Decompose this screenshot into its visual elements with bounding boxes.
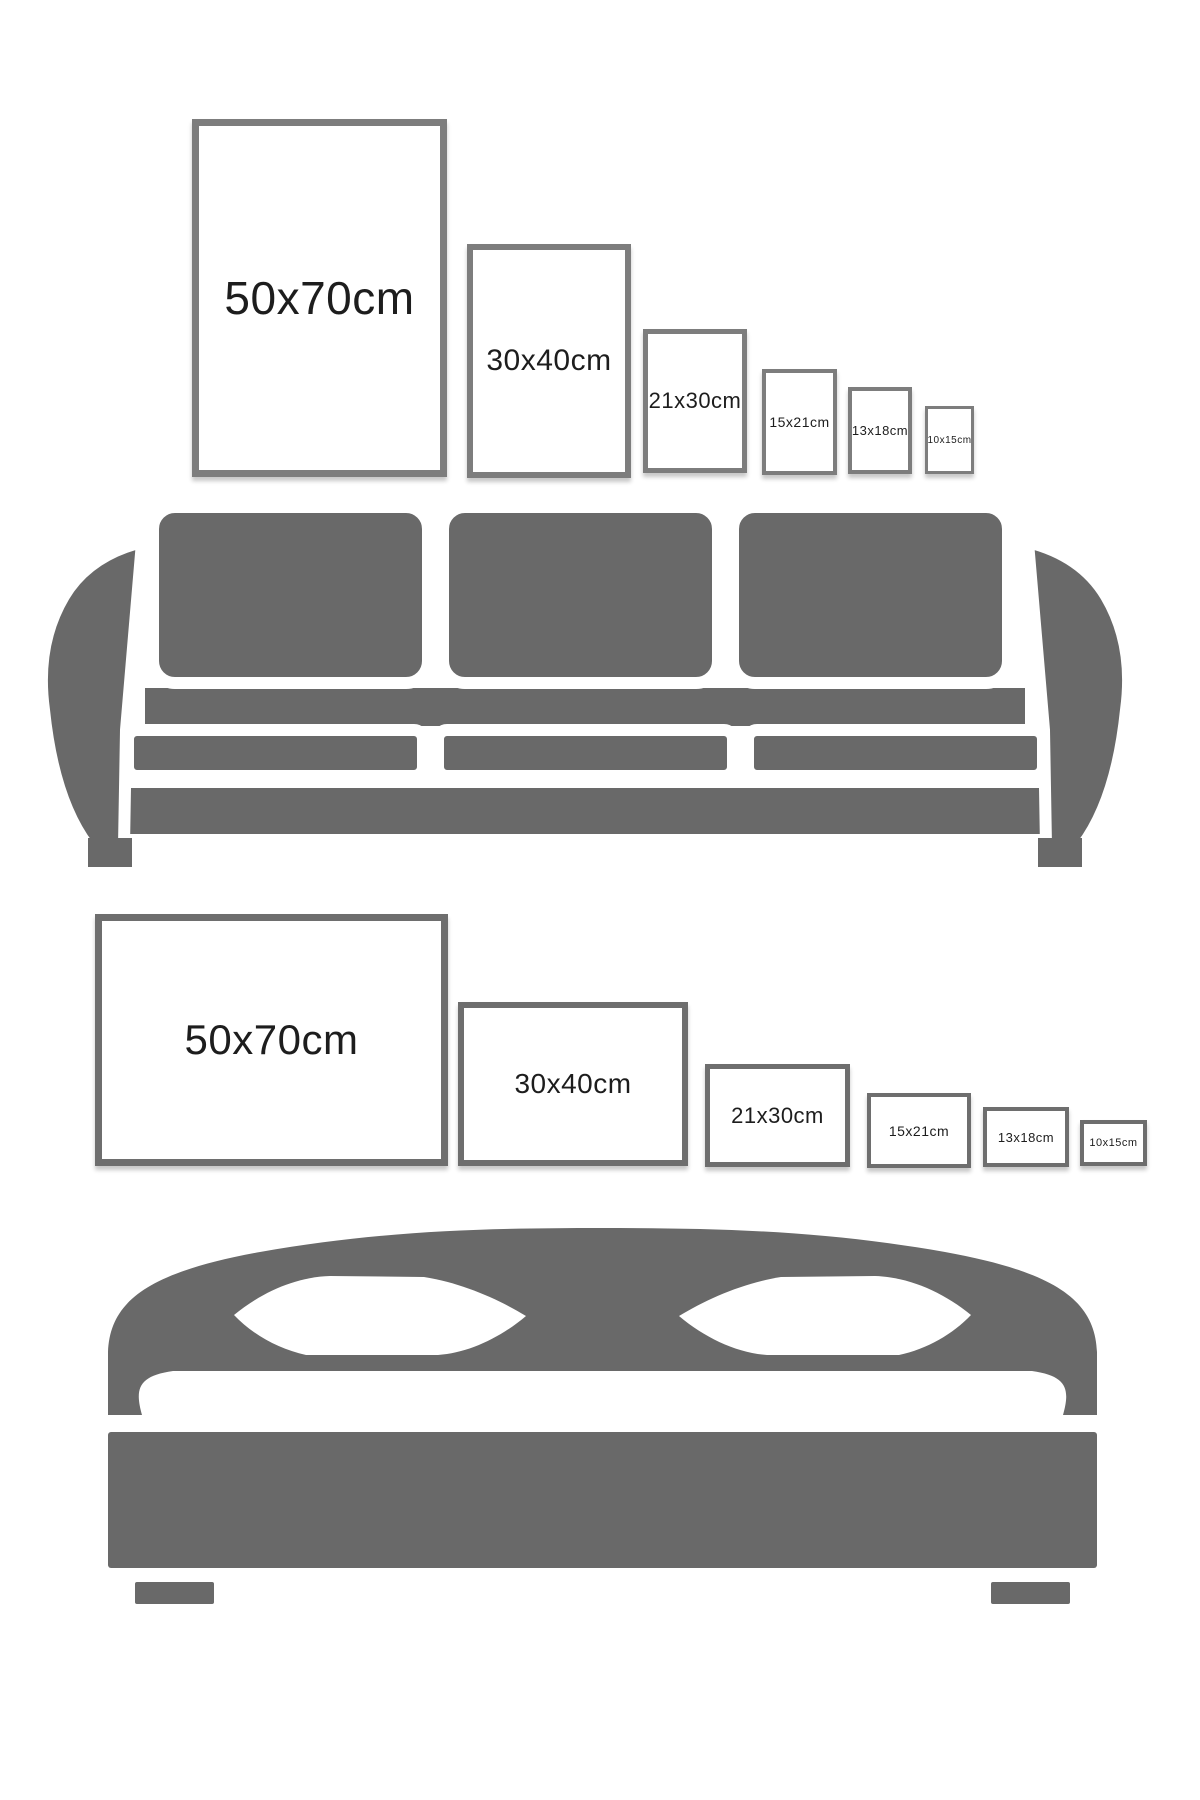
frame-30x40-landscape: 30x40cm — [458, 1002, 688, 1166]
frame-10x15-landscape: 10x15cm — [1080, 1120, 1147, 1166]
frame-10x15-portrait: 10x15cm — [925, 406, 974, 474]
sofa-seat-cushion — [438, 730, 733, 776]
bed-leg — [991, 1582, 1070, 1604]
frame-15x21-portrait: 15x21cm — [762, 369, 837, 475]
frame-30x40-portrait: 30x40cm — [467, 244, 631, 478]
sofa-left-arm — [42, 542, 142, 846]
frame-size-label: 15x21cm — [769, 414, 829, 430]
frame-size-label: 15x21cm — [889, 1123, 949, 1139]
bed-pillow-right — [679, 1276, 971, 1355]
frame-13x18-landscape: 13x18cm — [983, 1107, 1069, 1167]
frame-size-label: 50x70cm — [185, 1016, 359, 1064]
sofa-deck — [145, 688, 1025, 726]
sofa-base — [95, 782, 1075, 840]
bed-illustration — [108, 1228, 1097, 1604]
frame-size-label: 10x15cm — [1089, 1137, 1137, 1149]
sofa-seat-cushion — [748, 730, 1043, 776]
frame-21x30-landscape: 21x30cm — [705, 1064, 850, 1167]
frame-15x21-landscape: 15x21cm — [867, 1093, 971, 1168]
frame-size-label: 10x15cm — [927, 435, 971, 446]
frame-size-label: 13x18cm — [852, 423, 908, 438]
sofa-back-cushion — [153, 507, 428, 683]
sofa-back-cushion — [443, 507, 718, 683]
frame-size-label: 30x40cm — [514, 1068, 631, 1100]
frame-size-label: 13x18cm — [998, 1130, 1054, 1145]
bed-headboard — [108, 1228, 1097, 1415]
frame-50x70-portrait: 50x70cm — [192, 119, 447, 477]
sofa-leg — [88, 838, 132, 867]
frame-21x30-portrait: 21x30cm — [643, 329, 747, 473]
size-guide-infographic: 50x70cm30x40cm21x30cm15x21cm13x18cm10x15… — [0, 0, 1200, 1800]
frame-size-label: 21x30cm — [731, 1103, 824, 1129]
frame-13x18-portrait: 13x18cm — [848, 387, 912, 474]
sofa-illustration — [42, 507, 1128, 867]
frame-size-label: 50x70cm — [224, 271, 414, 325]
sofa-right-arm — [1028, 542, 1128, 846]
frame-50x70-landscape: 50x70cm — [95, 914, 448, 1166]
sofa-leg — [1038, 838, 1082, 867]
frame-size-label: 21x30cm — [649, 388, 742, 414]
sofa-back-cushion — [733, 507, 1008, 683]
sofa-seat-cushion — [128, 730, 423, 776]
bed-pillow-left — [234, 1276, 526, 1355]
frame-size-label: 30x40cm — [486, 344, 611, 378]
bed-leg — [135, 1582, 214, 1604]
bed-base — [108, 1432, 1097, 1568]
